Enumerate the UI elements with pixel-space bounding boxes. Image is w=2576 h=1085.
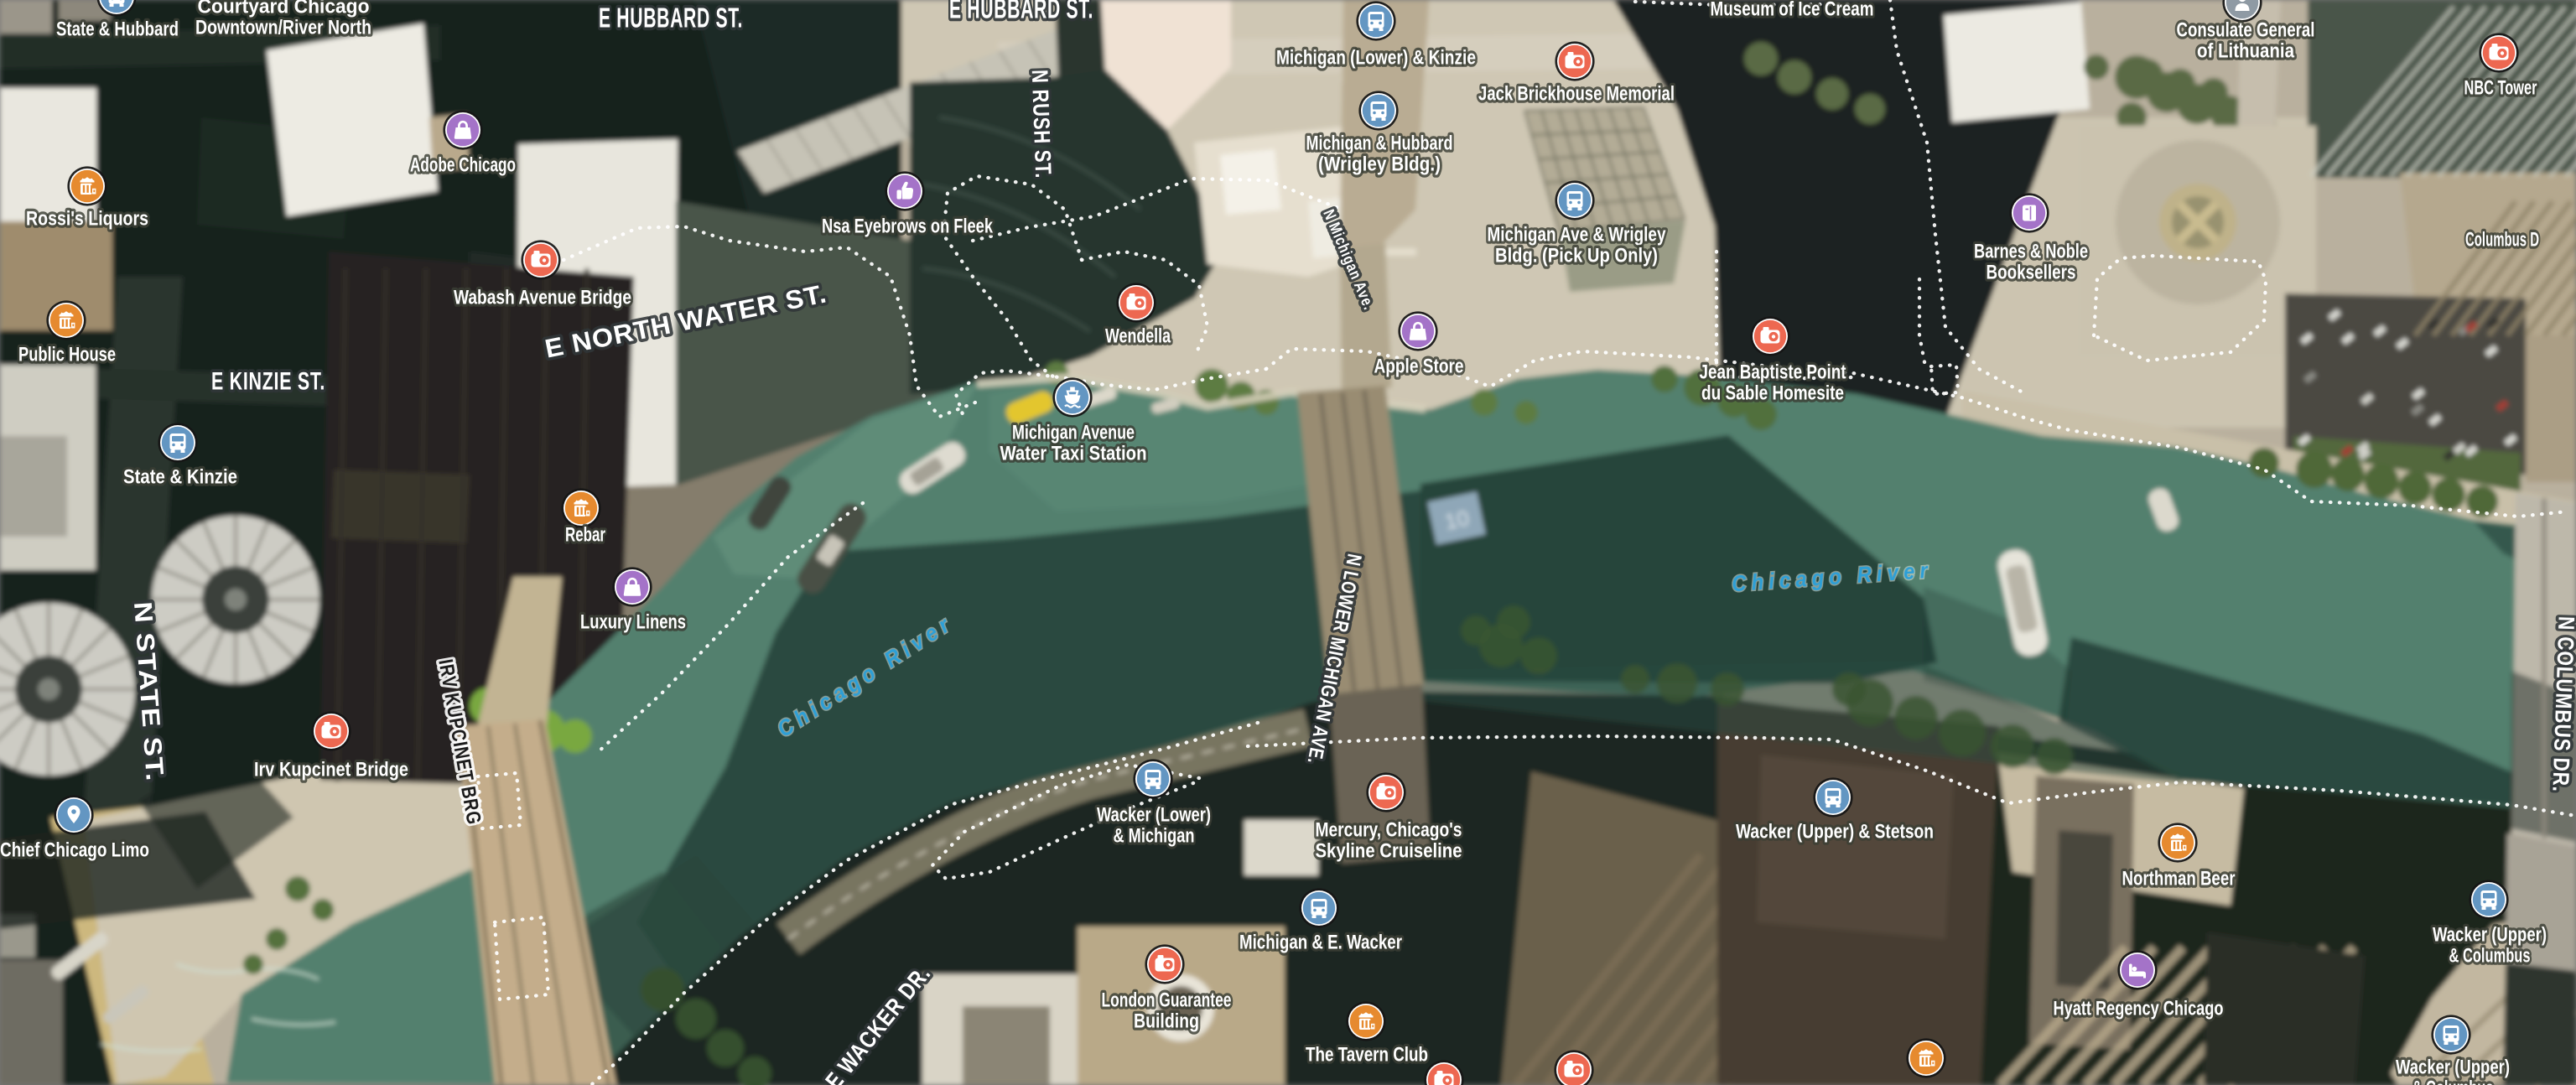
svg-text:Jean Baptiste Point: Jean Baptiste Point bbox=[1700, 361, 1846, 384]
svg-text:& Columbus: & Columbus bbox=[2449, 945, 2531, 968]
svg-text:(Wrigley Bldg.): (Wrigley Bldg.) bbox=[1318, 153, 1441, 176]
svg-text:London Guarantee: London Guarantee bbox=[1102, 989, 1232, 1012]
svg-text:E HUBBARD ST.: E HUBBARD ST. bbox=[949, 0, 1093, 24]
svg-text:Adobe Chicago: Adobe Chicago bbox=[410, 154, 516, 177]
svg-text:Booksellers: Booksellers bbox=[1987, 262, 2076, 284]
svg-text:Consulate General: Consulate General bbox=[2177, 19, 2315, 42]
svg-text:du Sable Homesite: du Sable Homesite bbox=[1701, 382, 1844, 405]
svg-text:Rebar: Rebar bbox=[565, 524, 605, 547]
svg-text:Barnes & Noble: Barnes & Noble bbox=[1974, 241, 2088, 263]
svg-text:Wacker (Upper) & Stetson: Wacker (Upper) & Stetson bbox=[1736, 821, 1934, 844]
svg-text:Skyline Cruiseline: Skyline Cruiseline bbox=[1316, 840, 1462, 863]
svg-text:Hyatt Regency Chicago: Hyatt Regency Chicago bbox=[2054, 998, 2224, 1020]
svg-text:Chief Chicago Limo: Chief Chicago Limo bbox=[0, 839, 149, 862]
svg-text:& Michigan: & Michigan bbox=[1114, 825, 1195, 848]
svg-text:Wendella: Wendella bbox=[1105, 325, 1171, 348]
svg-text:Museum of Ice Cream: Museum of Ice Cream bbox=[1711, 0, 1874, 21]
svg-text:Bldg. (Pick Up Only): Bldg. (Pick Up Only) bbox=[1495, 245, 1658, 267]
svg-text:Luxury Linens: Luxury Linens bbox=[580, 611, 686, 634]
svg-text:Wacker (Upper): Wacker (Upper) bbox=[2396, 1056, 2510, 1079]
svg-text:State & Hubbard: State & Hubbard bbox=[56, 18, 179, 41]
svg-text:of Lithuania: of Lithuania bbox=[2197, 40, 2295, 63]
svg-text:Public House: Public House bbox=[18, 344, 116, 366]
svg-text:Building: Building bbox=[1134, 1010, 1199, 1033]
svg-text:Michigan & E. Wacker: Michigan & E. Wacker bbox=[1239, 932, 1402, 954]
svg-text:Michigan Ave & Wrigley: Michigan Ave & Wrigley bbox=[1488, 224, 1667, 247]
svg-text:Jack Brickhouse Memorial: Jack Brickhouse Memorial bbox=[1478, 83, 1675, 106]
svg-text:The Tavern Club: The Tavern Club bbox=[1306, 1044, 1428, 1067]
svg-text:N RUSH ST.: N RUSH ST. bbox=[1027, 70, 1057, 179]
svg-text:Wabash Avenue Bridge: Wabash Avenue Bridge bbox=[454, 287, 631, 309]
svg-text:State & Kinzie: State & Kinzie bbox=[123, 466, 237, 489]
svg-text:Northman Beer: Northman Beer bbox=[2122, 868, 2236, 890]
svg-text:Wacker (Lower): Wacker (Lower) bbox=[1097, 804, 1211, 827]
svg-text:E HUBBARD ST.: E HUBBARD ST. bbox=[599, 3, 743, 34]
svg-text:Nsa Eyebrows on Fleek: Nsa Eyebrows on Fleek bbox=[822, 215, 993, 238]
svg-text:Michigan (Lower) & Kinzie: Michigan (Lower) & Kinzie bbox=[1276, 47, 1476, 70]
svg-text:Irv Kupcinet Bridge: Irv Kupcinet Bridge bbox=[254, 759, 408, 781]
svg-text:NBC Tower: NBC Tower bbox=[2464, 77, 2537, 100]
svg-text:Michigan & Hubbard: Michigan & Hubbard bbox=[1306, 132, 1453, 155]
svg-text:Michigan Avenue: Michigan Avenue bbox=[1012, 422, 1135, 444]
svg-text:& Columbus: & Columbus bbox=[2412, 1077, 2494, 1085]
svg-text:Mercury, Chicago's: Mercury, Chicago's bbox=[1316, 819, 1462, 842]
svg-text:E KINZIE ST.: E KINZIE ST. bbox=[211, 368, 325, 396]
svg-text:Apple Store: Apple Store bbox=[1374, 356, 1464, 378]
svg-text:Columbus D: Columbus D bbox=[2465, 229, 2539, 252]
svg-text:Downtown/River North: Downtown/River North bbox=[195, 17, 371, 39]
svg-text:10: 10 bbox=[1442, 505, 1472, 534]
svg-text:Water Taxi Station: Water Taxi Station bbox=[1000, 443, 1147, 465]
svg-text:Wacker (Upper): Wacker (Upper) bbox=[2433, 924, 2547, 947]
svg-text:Courtyard Chicago: Courtyard Chicago bbox=[198, 0, 370, 18]
svg-text:Rossi's Liquors: Rossi's Liquors bbox=[26, 208, 148, 231]
